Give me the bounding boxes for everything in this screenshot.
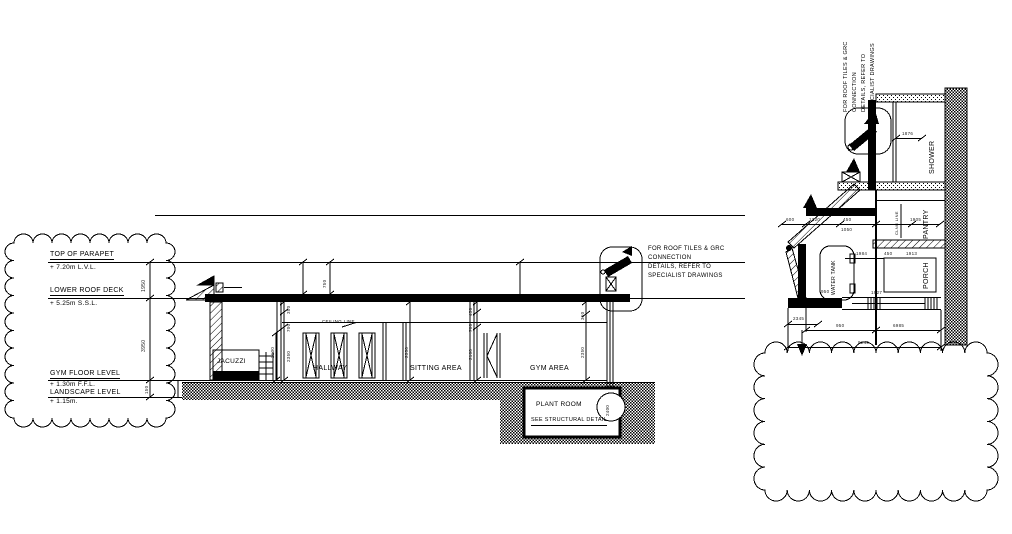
dim-floor-step: 150: [145, 386, 150, 394]
water-tank-label: WATER TANK: [832, 260, 837, 295]
clng-line-label: CLNG LINE: [895, 211, 899, 235]
dim-tank-height: 950: [821, 290, 829, 295]
dim-hall-opening: 2350: [405, 347, 410, 358]
level-label-gym-floor: GYM FLOOR LEVEL: [50, 370, 120, 379]
dim-top-row-3: 1905: [910, 218, 921, 223]
detail-roof-note-line1: FOR ROOF TILES & GRC: [844, 41, 850, 112]
dim-top-row-0: 600: [786, 218, 794, 223]
dim-hall-wall: 2100: [271, 347, 276, 358]
dim-shower-width: 1876: [902, 132, 913, 137]
enlarged-detail: [778, 88, 967, 356]
plant-room-note: SEE STRUCTURAL DETAIL: [531, 418, 607, 426]
dim-plant-depth: 2400: [606, 405, 611, 416]
room-label-hallway: HALLWAY: [313, 365, 347, 372]
room-label-sitting-area: SITTING AREA: [410, 365, 462, 372]
dim-bottom-row1-0: 950: [836, 324, 844, 329]
room-label-gym-area: GYM AREA: [530, 365, 569, 372]
level-label-landscape: LANDSCAPE LEVEL: [50, 389, 121, 398]
dim-top-row-2: 450: [843, 218, 851, 223]
level-label-top-of-parapet: TOP OF PARAPET: [50, 251, 114, 260]
dim-bottom-row1-1: 6985: [893, 324, 904, 329]
dim-col-c-1: 2350: [581, 347, 586, 358]
level-value-gym-floor: + 1.30m F.F.L.: [50, 382, 95, 389]
dim-col-c-0: 350: [581, 312, 586, 320]
dim-parapet-height: 750: [323, 280, 328, 288]
detail-roof-note-line2: CONNECTION: [853, 72, 859, 112]
dim-beam: 1927: [871, 291, 882, 296]
room-label-porch: PORCH: [923, 262, 930, 289]
cad-sheet: TOP OF PARAPET + 7.20m L.V.L. LOWER ROOF…: [0, 0, 1012, 534]
room-label-plant-room: PLANT ROOM: [536, 402, 582, 409]
dim-col-a-2: 2350: [287, 351, 292, 362]
room-label-jacuzzi: JACUZZI: [217, 359, 246, 366]
dim-col-b-1: 700: [469, 324, 474, 332]
dim-col-a-1: 700: [287, 324, 292, 332]
roof-note-line1: FOR ROOF TILES & GRC: [648, 246, 725, 252]
detail-roof-note-line4: SPECIALIST DRAWINGS: [871, 43, 877, 112]
dim-bottom-row2: 9245: [858, 341, 869, 346]
dim-porch-row-2: 1913: [906, 252, 917, 257]
dim-tank-width: 1050: [841, 228, 852, 233]
roof-note-line4: SPECIALIST DRAWINGS: [648, 273, 723, 279]
dim-porch-row-1: 450: [884, 252, 892, 257]
dim-roof-to-floor: 3950: [142, 340, 147, 352]
dim-parapet-to-roof: 1950: [142, 280, 147, 292]
ceiling-line-label: CEILING LINE: [322, 320, 355, 325]
dim-col-b-0: 450: [469, 308, 474, 316]
detail-roof-note-line3: DETAILS, REFER TO: [862, 54, 868, 112]
dim-top-row-1: 1320: [809, 218, 820, 223]
revision-cloud-empty: [754, 342, 998, 501]
roof-note-line2: CONNECTION: [648, 255, 691, 261]
level-value-landscape: + 1.15m.: [50, 399, 78, 406]
main-interior-walls: [272, 299, 613, 388]
dim-porch-row-0: 1984: [856, 252, 867, 257]
main-section: [48, 216, 745, 401]
dim-tank-base: 2345: [793, 317, 804, 322]
level-value-lower-roof-deck: + 5.25m S.S.L.: [50, 301, 97, 308]
dim-col-a-0: 350: [287, 306, 292, 314]
room-label-pantry: PANTRY: [923, 209, 930, 239]
room-label-shower: SHOWER: [929, 141, 936, 174]
level-label-lower-roof-deck: LOWER ROOF DECK: [50, 287, 124, 296]
level-value-top-of-parapet: + 7.20m L.V.L.: [50, 265, 96, 272]
roof-note-line3: DETAILS, REFER TO: [648, 264, 711, 270]
dim-col-b-2: 2100: [469, 349, 474, 360]
